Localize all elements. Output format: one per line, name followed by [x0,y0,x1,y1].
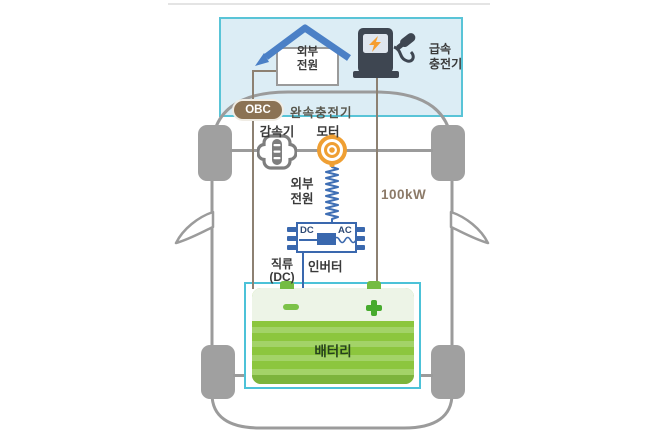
fast-charger-label: 급속 충전기 [429,42,462,71]
fast-charger-icon [350,26,430,84]
battery-stripe [252,327,414,333]
ac-link-label: 외부 전원 [280,177,324,207]
wheel-front-left [198,125,232,181]
charger-gun-icon [394,31,417,52]
inverter-pin [287,227,297,232]
wheel-front-right [431,125,465,181]
right-mirror [451,212,488,243]
dc-label-line2: (DC) [262,270,302,284]
wheel-rear-left [201,345,235,399]
reducer-label: 감속기 [249,121,305,140]
inverter-pin [355,236,365,241]
battery-top-section [252,288,414,321]
fast-charger-wire [376,74,378,286]
inverter-ac-wave [334,234,356,246]
minus-symbol [283,304,299,310]
inverter-pin [287,245,297,250]
battery-label: 배터리 [252,340,414,360]
inverter-dc-label: DC [300,225,314,236]
battery-bottom-band [252,375,414,384]
home-power-label: 외부 전원 [277,45,338,73]
inverter-name-label: 인버터 [308,256,343,275]
obc-label: 완속충전기 [290,102,353,121]
ac-coil [325,163,339,223]
plus-symbol [371,300,377,316]
wheel-rear-right [431,345,465,399]
ev-diagram: DC AC 배터리 외부 전원 [0,0,658,438]
left-mirror [176,212,213,243]
motor-label: 모터 [302,121,354,140]
obc-badge: OBC [234,101,282,119]
inverter-pin [355,227,365,232]
inverter-pin [287,236,297,241]
dc-wire [302,252,304,289]
power-rating-label: 100kW [381,187,426,202]
inverter-pin [355,245,365,250]
inverter-dc-line [299,239,319,241]
battery [252,288,414,384]
battery-plus-terminal [367,281,381,289]
inverter-core [317,233,336,245]
